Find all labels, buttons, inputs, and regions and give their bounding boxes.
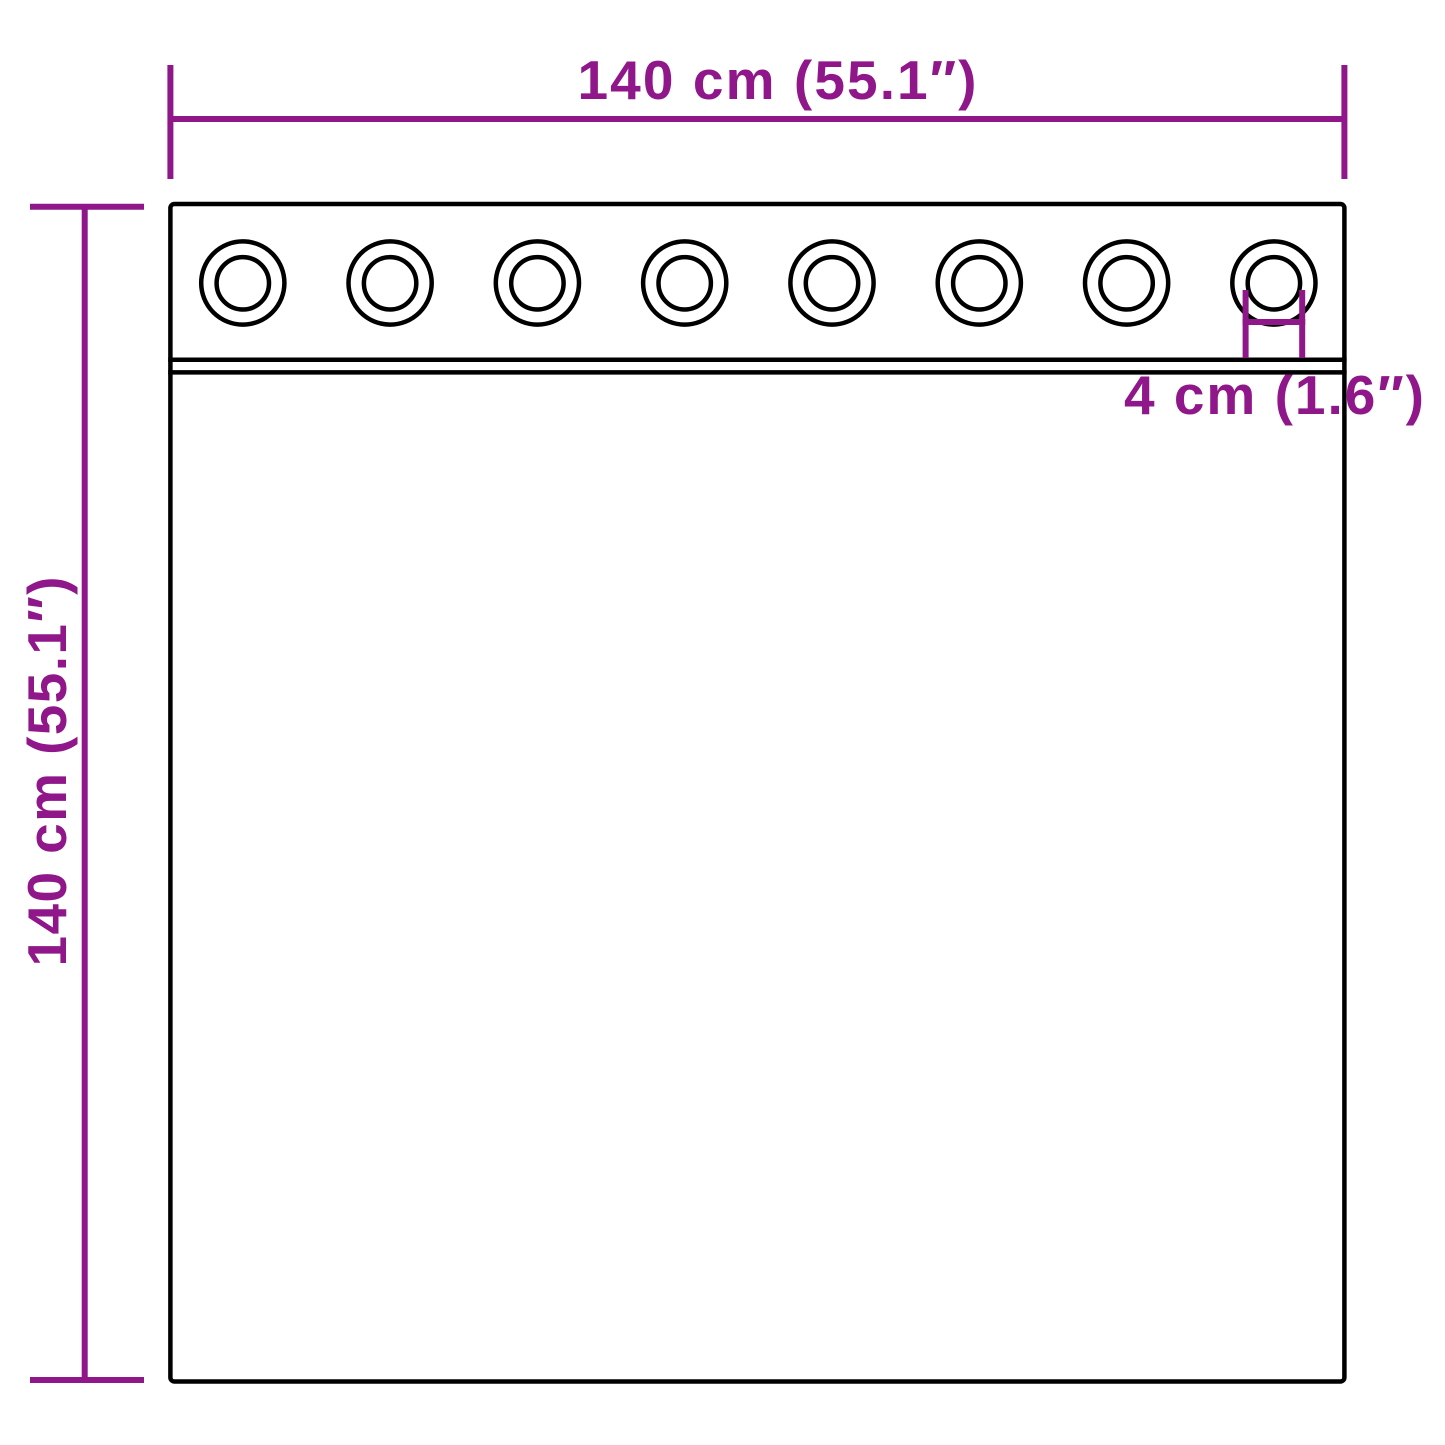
svg-text:140 cm (55.1″): 140 cm (55.1″): [16, 577, 78, 967]
svg-text:140 cm (55.1″): 140 cm (55.1″): [578, 49, 977, 111]
svg-text:4 cm (1.6″): 4 cm (1.6″): [1124, 364, 1424, 426]
